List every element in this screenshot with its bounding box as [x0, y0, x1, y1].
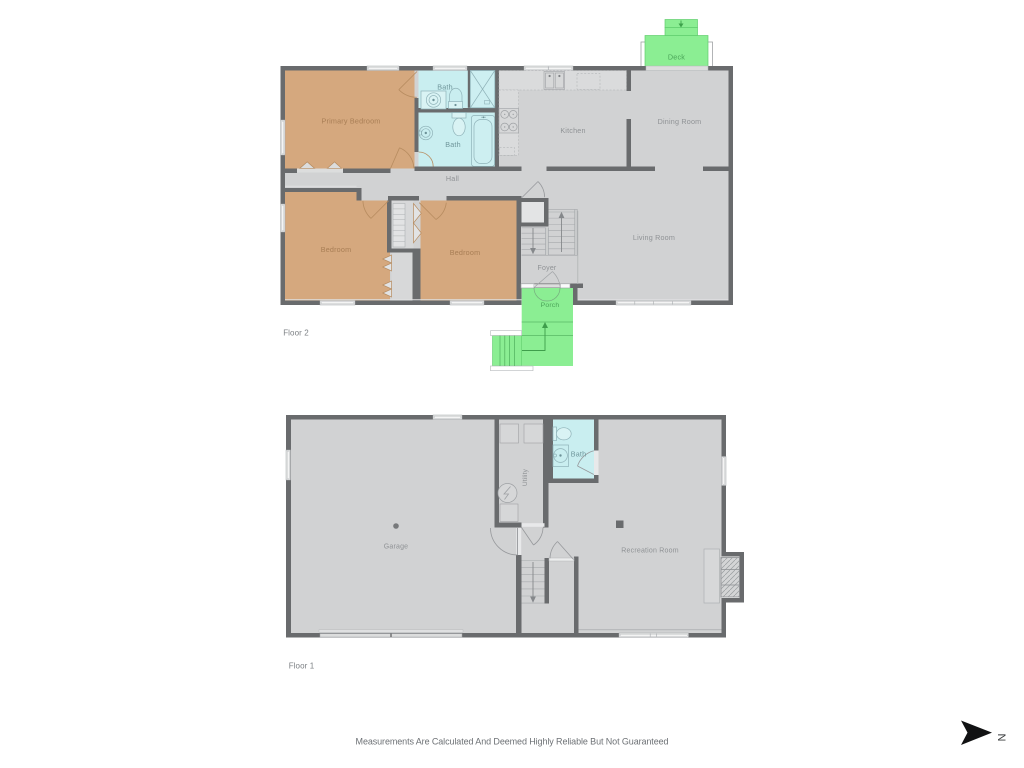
svg-text:Bath: Bath: [445, 140, 461, 149]
svg-text:Floor 2: Floor 2: [283, 329, 309, 338]
svg-text:Primary Bedroom: Primary Bedroom: [322, 117, 381, 126]
svg-text:N: N: [995, 734, 1007, 742]
svg-text:Dining Room: Dining Room: [658, 117, 702, 126]
svg-text:Hall: Hall: [446, 174, 459, 183]
svg-text:Deck: Deck: [668, 53, 685, 62]
svg-text:Bedroom: Bedroom: [321, 245, 352, 254]
svg-text:Foyer: Foyer: [538, 265, 557, 272]
svg-text:Bedroom: Bedroom: [450, 248, 481, 257]
svg-text:Bath: Bath: [571, 449, 587, 458]
svg-text:Porch: Porch: [541, 302, 560, 309]
svg-text:Living Room: Living Room: [633, 233, 675, 242]
svg-text:Measurements Are Calculated An: Measurements Are Calculated And Deemed H…: [356, 736, 669, 746]
svg-text:Utility: Utility: [522, 468, 529, 486]
svg-text:Garage: Garage: [384, 543, 409, 550]
svg-text:Recreation Room: Recreation Room: [621, 547, 678, 554]
svg-text:Kitchen: Kitchen: [560, 126, 585, 135]
svg-text:Floor 1: Floor 1: [289, 661, 315, 670]
svg-text:Bath: Bath: [437, 83, 453, 92]
